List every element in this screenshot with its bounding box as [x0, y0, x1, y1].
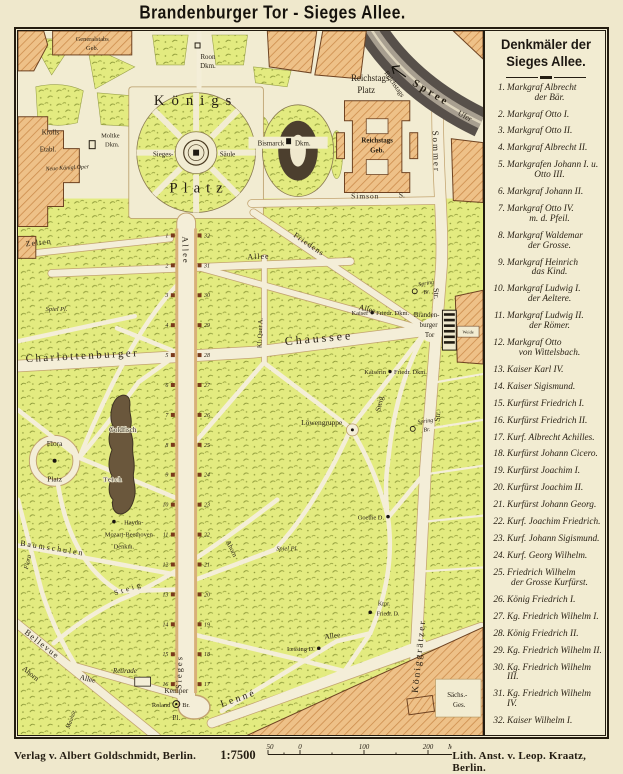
monument-pedestal [198, 323, 202, 327]
legend-item-label: Markgraf Otto IV.m. d. Pfeil. [507, 205, 602, 225]
label-generalstab2: Geb. [86, 45, 99, 52]
monument-number: 23 [204, 503, 210, 509]
label-saechsische-gesandtschaft2: Ges. [453, 701, 466, 709]
legend-item-number: 29. [490, 647, 507, 657]
monument-number: 28 [204, 353, 210, 359]
flora-platz-center [53, 459, 57, 463]
goethe-marker [386, 515, 390, 519]
label-brandenburger-tor3: Tor [425, 331, 435, 339]
monument-number: 25 [204, 443, 210, 449]
legend-item-number: 31. [490, 690, 507, 710]
legend-item: 26.König Friedrich I. [490, 596, 602, 606]
legend-item: 9.Markgraf Heinrichdas Kind. [490, 259, 602, 279]
monument-pedestal [198, 443, 202, 447]
monument-number: 19 [204, 622, 210, 628]
legend-item-number: 26. [490, 596, 507, 606]
label-goethe-denkmal: Goethe D. [358, 515, 385, 522]
label-reichstagsplatz2: Platz [357, 85, 375, 95]
moltke-monument-marker [89, 141, 95, 149]
label-spielplatz-s: Spiel Pl. [276, 546, 298, 553]
label-moltke2: Dkm. [105, 142, 120, 149]
monument-number: 22 [204, 533, 210, 539]
monument-number: 14 [162, 621, 168, 628]
legend-item-number: 27. [490, 613, 507, 623]
legend-item: 23.Kurf. Johann Sigismund. [490, 535, 602, 545]
legend-item-number: 8. [490, 232, 507, 252]
label-generalstab: Generalstabs [76, 36, 110, 43]
label-simsonstrasse2: S. [399, 190, 405, 199]
legend-item-number: 13. [490, 366, 507, 376]
legend-item-number: 20. [490, 484, 507, 494]
label-goldfischteich: Goldfisch [109, 426, 137, 434]
city-block [451, 139, 483, 203]
scale-ratio: 1:7500 [220, 748, 255, 763]
publisher-right: Lith. Anst. v. Leop. Kraatz, Berlin. [452, 750, 609, 774]
legend-item-label: Markgraf Otto II. [507, 127, 602, 137]
legend-item-label: Kurfürst Friedrich II. [507, 417, 602, 427]
label-roon: Roon [200, 53, 216, 61]
monument-pedestal [171, 562, 175, 566]
legend-item-label: Kurfürst Joachim II. [507, 484, 602, 494]
kaiserin-friedrich-marker [388, 370, 391, 373]
monument-number: 27 [204, 383, 211, 389]
scale-tick-100: 100 [358, 743, 369, 751]
label-floraplatz: Flora [47, 439, 63, 448]
legend-item-label: Kurfürst Friedrich I. [507, 400, 602, 410]
monument-number: 1 [165, 233, 168, 239]
legend-item: 15.Kurfürst Friedrich I. [490, 400, 602, 410]
map-frame-inner: 1322313304295286277268259241023112212211… [17, 30, 606, 736]
legend-panel: Denkmäler der Sieges Allee. 1.Markgraf A… [483, 31, 605, 735]
label-sommerstrasse2: Str. [432, 288, 442, 299]
label-loewengruppe: Löwengruppe [301, 418, 343, 427]
legend-item-label: Markgraf Otto I. [507, 111, 602, 121]
label-kronprinz-denkmal2: Friedr. D. [377, 611, 400, 617]
legend-item-number: 19. [490, 467, 507, 477]
monument-number: 17 [204, 682, 211, 688]
legend-item: 10.Markgraf Ludwig I.der Aeltere. [490, 285, 602, 305]
legend-item-label: Kurf. Georg Wilhelm. [507, 552, 602, 562]
label-goldfischteich2: Teich [103, 477, 122, 484]
legend-item: 24.Kurf. Georg Wilhelm. [490, 552, 602, 562]
monument-pedestal [198, 353, 202, 357]
monument-number: 8 [165, 443, 168, 449]
label-kronprinz-denkmal: Krpr. [378, 601, 391, 607]
monument-pedestal [198, 652, 202, 656]
monument-pedestal [198, 533, 202, 537]
label-krolls: Krolls [42, 129, 60, 137]
label-bismarck: Bismarck [258, 140, 285, 148]
legend-item: 19.Kurfürst Joachim I. [490, 467, 602, 477]
legend-list: 1.Markgraf Albrechtder Bär.2.Markgraf Ot… [490, 81, 602, 727]
legend-item-number: 2. [490, 111, 507, 121]
saechsische-gesandtschaft-building [407, 695, 435, 714]
monument-pedestal [198, 562, 202, 566]
label-reichstag2: Geb. [370, 147, 384, 155]
label-weide: Weide [463, 330, 474, 335]
kronprinz-marker [368, 611, 372, 615]
label-kemperplatz2: Pl. [172, 713, 180, 722]
haydn-marker [112, 520, 116, 524]
roland-fountain-center [175, 703, 177, 705]
map-page: { "title": "Brandenburger Tor - Sieges A… [0, 0, 623, 765]
city-block [315, 31, 366, 79]
scale-tick-50: 50 [266, 743, 274, 751]
legend-item-label: Markgrafen Johann I. u.Otto III. [507, 161, 602, 181]
monument-number: 10 [162, 503, 168, 509]
monument-pedestal [171, 293, 175, 297]
scale-tick-200: 200 [422, 743, 433, 751]
legend-item-number: 24. [490, 552, 507, 562]
legend-item-number: 7. [490, 205, 507, 225]
legend-item-number: 4. [490, 144, 507, 154]
legend-item-label: Markgraf Ludwig II.der Römer. [507, 312, 602, 332]
legend-item-number: 1. [490, 84, 507, 104]
legend-item: 17.Kurf. Albrecht Achilles. [490, 434, 602, 444]
legend-item: 20.Kurfürst Joachim II. [490, 484, 602, 494]
legend-item-number: 22. [490, 518, 507, 528]
publisher-left: Verlag v. Albert Goldschmidt, Berlin. [14, 750, 220, 762]
legend-item: 29.Kg. Friedrich Wilhelm II. [490, 647, 602, 657]
legend-item-label: Kg. Friedrich Wilhelm II. [507, 647, 602, 657]
monument-pedestal [171, 622, 175, 626]
label-roon2: Dkm. [200, 62, 216, 70]
legend-item-label: Kurf. Albrecht Achilles. [507, 434, 602, 444]
legend-item-label: Kurf. Joachim Friedrich. [507, 518, 602, 528]
label-lessing-denkmal: Lessing D. [287, 646, 315, 653]
monument-number: 12 [162, 562, 168, 568]
legend-item-label: Kaiser Karl IV. [507, 366, 602, 376]
monument-number: 15 [162, 652, 168, 658]
label-kemperplatz: Kemper [164, 686, 188, 695]
label-roland-brunnen2: Br. [182, 702, 190, 709]
legend-item-label: Markgraf Albrechtder Bär. [507, 84, 602, 104]
label-koeniggraetzer-str-short: Str. [433, 410, 443, 422]
monument-number: 24 [204, 472, 210, 479]
monument-pedestal [198, 263, 202, 267]
legend-item-number: 12. [490, 339, 507, 359]
label-allee-horizontal: Allee [247, 252, 269, 262]
monument-pedestal [198, 413, 202, 417]
legend-item-number: 17. [490, 434, 507, 444]
legend-item-number: 28. [490, 630, 507, 640]
monument-pedestal [171, 323, 175, 327]
label-springbrunnen-s2: Br. [423, 427, 431, 434]
legend-item-number: 10. [490, 285, 507, 305]
scale-tick-0: 0 [298, 743, 302, 751]
legend-item: 14.Kaiser Sigismund. [490, 383, 602, 393]
label-haydn-denkmal: Haydn- [124, 520, 143, 527]
legend-ornament-rule [506, 76, 586, 79]
legend-item-label: Markgraf Ludwig I.der Aeltere. [507, 285, 602, 305]
monument-number: 5 [165, 353, 168, 359]
monument-pedestal [171, 473, 175, 477]
label-floraplatz2: Platz [47, 475, 63, 484]
legend-item-label: Markgraf Ottovon Wittelsbach. [507, 339, 602, 359]
monument-pedestal [198, 383, 202, 387]
label-retirade: Retirade [112, 667, 137, 675]
monument-pedestal [171, 353, 175, 357]
legend-item-label: Kurfürst Joachim I. [507, 467, 602, 477]
label-roland-brunnen: Roland [152, 702, 171, 709]
legend-title-line1: Denkmäler der [501, 37, 591, 52]
label-springbrunnen-n2: Br. [423, 289, 431, 296]
legend-title-line2: Sieges Allee. [506, 54, 585, 69]
legend-item: 6.Markgraf Johann II. [490, 188, 602, 198]
label-koenigsplatz2: Platz [169, 180, 228, 196]
legend-item-number: 16. [490, 417, 507, 427]
legend-item-label: Markgraf Johann II. [507, 188, 602, 198]
monument-number: 6 [165, 383, 168, 389]
legend-item: 22.Kurf. Joachim Friedrich. [490, 518, 602, 528]
label-siegessaeule2: Säule [220, 151, 235, 159]
scale-bar: 50 0 100 200 Meter [264, 743, 453, 759]
monument-pedestal [198, 592, 202, 596]
legend-item-number: 15. [490, 400, 507, 410]
monument-number: 2 [165, 263, 168, 269]
legend-item-label: Kaiser Sigismund. [507, 383, 602, 393]
monument-pedestal [171, 533, 175, 537]
legend-item-label: Markgraf Heinrichdas Kind. [507, 259, 602, 279]
monument-number: 32 [203, 233, 210, 239]
legend-item-label: König Friedrich I. [507, 596, 602, 606]
legend-item: 7.Markgraf Otto IV.m. d. Pfeil. [490, 205, 602, 225]
legend-item-label: Friedrich Wilhelmder Grosse Kurfürst. [507, 569, 602, 589]
legend-item-label: Kaiser Wilhelm I. [507, 717, 602, 727]
legend-item-label: Kg. Friedrich Wilhelm I. [507, 613, 602, 623]
monument-pedestal [198, 682, 202, 686]
label-koenigsplatz: Königs [154, 93, 238, 109]
legend-item: 21.Kurfürst Johann Georg. [490, 501, 602, 511]
siegessaeule-marker [193, 150, 199, 156]
retirade-building [135, 677, 151, 686]
monument-number: 18 [204, 652, 210, 658]
label-kleine-quer-allee: Kl. Quer A. [256, 317, 264, 348]
legend-item: 16.Kurfürst Friedrich II. [490, 417, 602, 427]
label-krolls2: Etabl. [40, 146, 57, 154]
legend-item: 18.Kurfürst Johann Cicero. [490, 450, 602, 460]
label-brandenburger-tor: Branden- [414, 311, 440, 319]
monument-pedestal [198, 293, 202, 297]
label-haydn-denkmal2: Mozart-Beethoven [105, 532, 154, 539]
legend-item: 4.Markgraf Albrecht II. [490, 144, 602, 154]
map-frame: 1322313304295286277268259241023112212211… [14, 27, 609, 739]
bismarck-rondell [262, 105, 333, 197]
legend-item-label: Kg. Friedrich Wilhelm IV. [507, 690, 602, 710]
monument-number: 3 [164, 293, 168, 299]
monument-pedestal [171, 233, 175, 237]
monument-number: 9 [165, 473, 168, 479]
monument-number: 20 [204, 592, 210, 598]
label-moltke: Moltke [101, 133, 120, 140]
legend-item: 32.Kaiser Wilhelm I. [490, 717, 602, 727]
legend-item: 2.Markgraf Otto I. [490, 111, 602, 121]
legend-item-number: 21. [490, 501, 507, 511]
legend-title: Denkmäler der Sieges Allee. [492, 37, 600, 71]
legend-item-number: 25. [490, 569, 507, 589]
monument-number: 26 [204, 413, 210, 419]
legend-item-label: Markgraf Waldemarder Grosse. [507, 232, 602, 252]
map-canvas: 1322313304295286277268259241023112212211… [18, 31, 483, 735]
monument-pedestal [171, 503, 175, 507]
footer: Verlag v. Albert Goldschmidt, Berlin. 1:… [14, 743, 609, 763]
monument-pedestal [171, 383, 175, 387]
city-block [267, 31, 316, 73]
legend-item-number: 11. [490, 312, 507, 332]
legend-item-number: 5. [490, 161, 507, 181]
monument-number: 30 [203, 293, 210, 299]
monument-pedestal [171, 443, 175, 447]
label-siegessaeule: Sieges- [153, 151, 174, 159]
monument-pedestal [198, 503, 202, 507]
monument-pedestal [171, 592, 175, 596]
legend-item: 30.Kg. Friedrich Wilhelm III. [490, 664, 602, 684]
legend-item-label: Markgraf Albrecht II. [507, 144, 602, 154]
legend-item-number: 14. [490, 383, 507, 393]
legend-item: 31.Kg. Friedrich Wilhelm IV. [490, 690, 602, 710]
monument-number: 11 [163, 533, 169, 539]
monument-number: 4 [165, 322, 168, 329]
legend-item: 12.Markgraf Ottovon Wittelsbach. [490, 339, 602, 359]
monument-pedestal [198, 233, 202, 237]
legend-item: 3.Markgraf Otto II. [490, 127, 602, 137]
monument-pedestal [198, 622, 202, 626]
legend-item-number: 32. [490, 717, 507, 727]
legend-item-number: 18. [490, 450, 507, 460]
monument-pedestal [198, 473, 202, 477]
legend-item: 25.Friedrich Wilhelmder Grosse Kurfürst. [490, 569, 602, 589]
bismarck-monument-marker [286, 138, 291, 144]
legend-item-label: Kurfürst Johann Cicero. [507, 450, 602, 460]
label-brandenburger-tor2: burger [420, 321, 439, 329]
lessing-marker [317, 646, 321, 650]
label-spielplatz-nw: Spiel Pl. [46, 306, 68, 313]
label-siegesallee-south: Sieges [173, 655, 184, 689]
label-haydn-denkmal3: Denkm. [114, 544, 135, 551]
legend-item-number: 30. [490, 664, 507, 684]
legend-item-label: Kurfürst Johann Georg. [507, 501, 602, 511]
label-kaiserin-friedrich: Kaiserin [364, 369, 387, 376]
monument-number: 31 [203, 263, 210, 269]
label-bismarck2: Dkm. [295, 140, 311, 148]
legend-item: 1.Markgraf Albrechtder Bär. [490, 84, 602, 104]
legend-item: 27.Kg. Friedrich Wilhelm I. [490, 613, 602, 623]
label-siegesallee-north: Allee [180, 236, 191, 265]
label-simsonstrasse: Simson [351, 191, 379, 200]
label-sommerstrasse: Sommer [431, 130, 442, 173]
label-reichstag: Reichstags [361, 137, 393, 145]
page-title: Brandenburger Tor - Sieges Allee. [22, 2, 523, 24]
label-kaiser-friedrich2: Friedr. Dkm. [376, 310, 409, 317]
label-saechsische-gesandtschaft: Sächs.- [447, 691, 468, 699]
legend-item-number: 3. [490, 127, 507, 137]
label-kaiser-friedrich: Kaiser [351, 310, 369, 317]
legend-item-number: 23. [490, 535, 507, 545]
legend-item: 11.Markgraf Ludwig II.der Römer. [490, 312, 602, 332]
legend-item-label: Kurf. Johann Sigismund. [507, 535, 602, 545]
monument-number: 13 [162, 592, 168, 598]
legend-item-number: 9. [490, 259, 507, 279]
loewengruppe-marker [351, 428, 354, 431]
legend-item-label: König Friedrich II. [507, 630, 602, 640]
legend-item: 8.Markgraf Waldemarder Grosse. [490, 232, 602, 252]
monument-number: 21 [204, 562, 210, 568]
legend-item: 5.Markgrafen Johann I. u.Otto III. [490, 161, 602, 181]
legend-item: 13.Kaiser Karl IV. [490, 366, 602, 376]
monument-pedestal [171, 413, 175, 417]
monument-number: 29 [204, 323, 210, 329]
monument-pedestal [171, 263, 175, 267]
legend-item: 28.König Friedrich II. [490, 630, 602, 640]
legend-item-number: 6. [490, 188, 507, 198]
label-kaiserin-friedrich2: Friedr. Dkm. [394, 369, 427, 376]
legend-item-label: Kg. Friedrich Wilhelm III. [507, 664, 602, 684]
